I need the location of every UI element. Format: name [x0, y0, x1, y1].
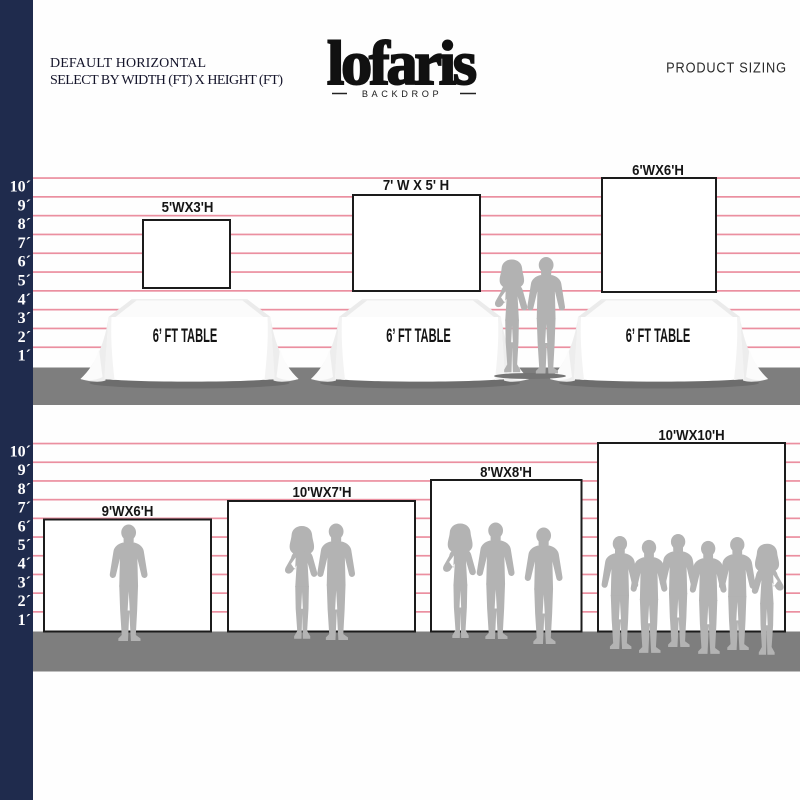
svg-text:6’ FT TABLE: 6’ FT TABLE — [386, 326, 451, 347]
svg-text:3´: 3´ — [18, 574, 31, 591]
svg-text:9'WX6'H: 9'WX6'H — [102, 502, 154, 519]
svg-text:2´: 2´ — [18, 593, 31, 610]
svg-text:SELECT BY WIDTH (FT) X HEIGHT: SELECT BY WIDTH (FT) X HEIGHT (FT) — [50, 73, 283, 88]
svg-text:10´: 10´ — [10, 444, 31, 461]
svg-text:9´: 9´ — [18, 462, 31, 479]
svg-text:2´: 2´ — [18, 329, 31, 346]
svg-text:10'WX7'H: 10'WX7'H — [292, 483, 351, 500]
svg-text:6’ FT TABLE: 6’ FT TABLE — [153, 326, 218, 347]
svg-text:7´: 7´ — [18, 235, 31, 252]
svg-text:8'WX8'H: 8'WX8'H — [480, 463, 532, 480]
svg-text:BACKDROP: BACKDROP — [362, 89, 442, 99]
svg-text:6'WX6'H: 6'WX6'H — [632, 161, 684, 178]
svg-text:6’ FT TABLE: 6’ FT TABLE — [626, 326, 691, 347]
svg-text:3´: 3´ — [18, 310, 31, 327]
svg-text:lofaris: lofaris — [327, 30, 477, 98]
svg-text:8´: 8´ — [18, 481, 31, 498]
svg-text:8´: 8´ — [18, 216, 31, 233]
svg-text:5'WX3'H: 5'WX3'H — [162, 198, 214, 215]
svg-text:10'WX10'H: 10'WX10'H — [658, 426, 724, 443]
svg-text:1´: 1´ — [18, 612, 31, 629]
svg-text:10´: 10´ — [10, 179, 31, 196]
svg-text:1´: 1´ — [18, 348, 31, 365]
svg-text:9´: 9´ — [18, 197, 31, 214]
svg-text:7´: 7´ — [18, 500, 31, 517]
svg-text:6´: 6´ — [18, 518, 31, 535]
svg-text:PRODUCT SIZING: PRODUCT SIZING — [666, 58, 787, 75]
svg-text:4´: 4´ — [18, 556, 31, 573]
svg-text:5´: 5´ — [18, 537, 31, 554]
svg-text:4´: 4´ — [18, 291, 31, 308]
svg-text:6´: 6´ — [18, 254, 31, 271]
svg-text:5´: 5´ — [18, 273, 31, 290]
svg-text:DEFAULT HORIZONTAL: DEFAULT HORIZONTAL — [50, 56, 206, 71]
svg-text:7' W X 5' H: 7' W X 5' H — [383, 176, 449, 193]
